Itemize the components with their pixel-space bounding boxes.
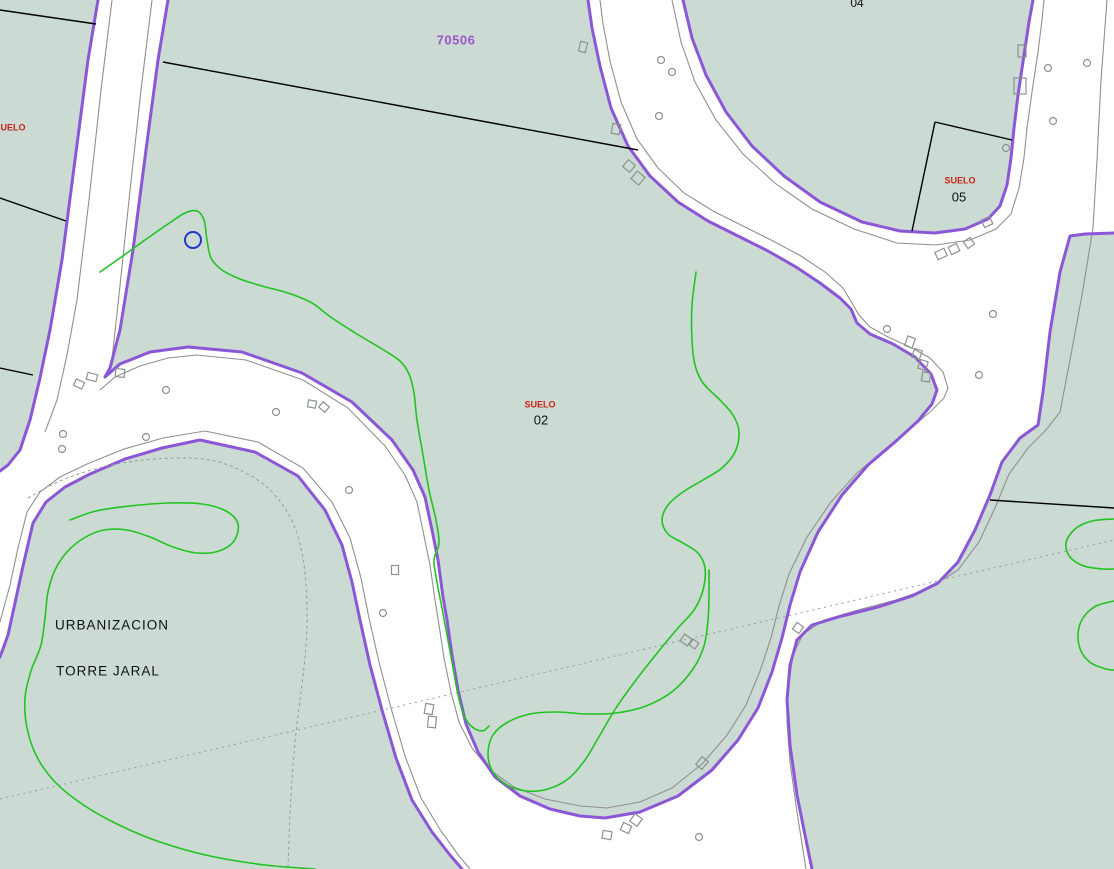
map-canvas[interactable] <box>0 0 1114 869</box>
cadastral-map-viewport[interactable]: 70506SUELOSUELO02SUELO0504URBANIZACIONTO… <box>0 0 1114 869</box>
map-svg <box>0 0 1114 869</box>
